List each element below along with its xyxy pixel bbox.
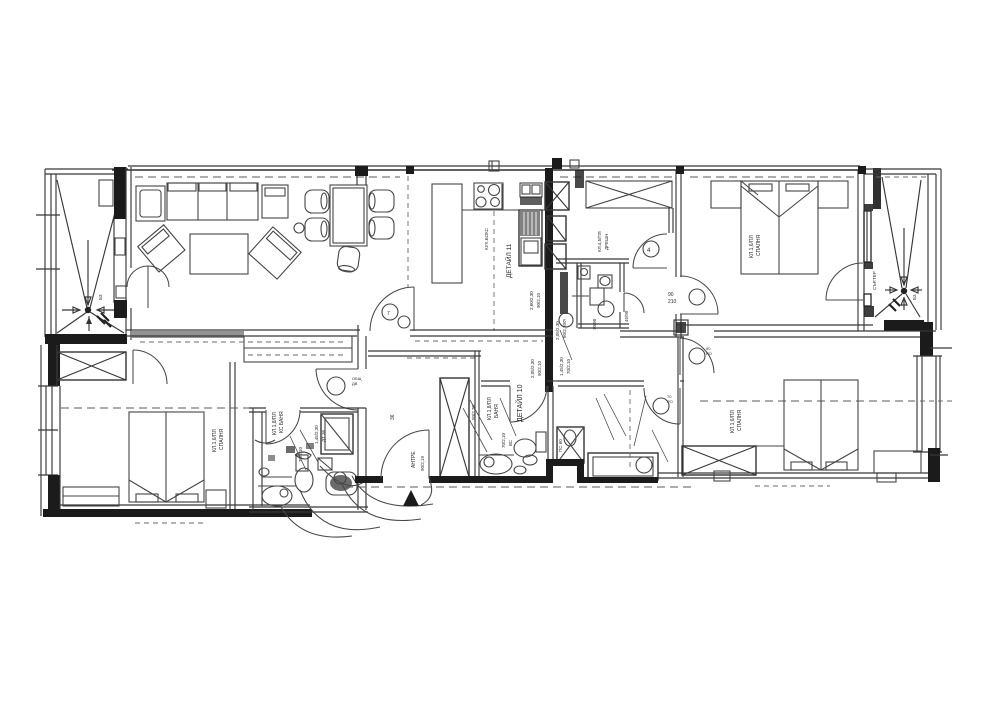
svg-text:2,05/2,30: 2,05/2,30 [530, 359, 535, 378]
svg-text:СПАЛНЯ: СПАЛНЯ [219, 428, 225, 450]
svg-text:2,05/2,30: 2,05/2,30 [555, 321, 560, 340]
svg-text:50/2,30: 50/2,30 [471, 404, 476, 420]
svg-text:1,45/2,30: 1,45/2,30 [559, 357, 564, 376]
svg-text:АНТРЕ: АНТРЕ [411, 451, 417, 468]
svg-text:БЗ: БЗ [912, 294, 917, 300]
svg-text:ДРЕШН: ДРЕШН [604, 234, 609, 250]
svg-text:1,45/2,30: 1,45/2,30 [314, 425, 319, 444]
svg-text:7: 7 [387, 311, 390, 317]
svg-text:90: 90 [668, 292, 674, 298]
svg-text:КУХ.БОКС: КУХ.БОКС [484, 227, 489, 250]
svg-text:КС БАНЯ: КС БАНЯ [279, 411, 285, 433]
svg-text:КЛ.1,6/ПЛ: КЛ.1,6/ПЛ [730, 410, 736, 433]
svg-text:СПАЛНЯ: СПАЛНЯ [756, 234, 762, 256]
svg-text:КЛ.1,8/ПЛ: КЛ.1,8/ПЛ [272, 412, 278, 435]
svg-text:ДТ 36: ДТ 36 [321, 429, 326, 442]
svg-text:ДВ: ДВ [352, 381, 358, 386]
svg-text:ПС 60: ПС 60 [558, 439, 563, 452]
svg-text:ДЕТАЙЛ 10: ДЕТАЙЛ 10 [515, 384, 524, 422]
svg-text:РО: РО [706, 351, 712, 356]
svg-text:90/2,19: 90/2,19 [420, 455, 425, 471]
svg-text:70/2,10: 70/2,10 [298, 446, 303, 462]
svg-text:36: 36 [390, 414, 396, 420]
svg-text:90/2,10: 90/2,10 [537, 360, 542, 376]
svg-text:БЗ: БЗ [98, 294, 103, 300]
svg-text:РО: РО [667, 399, 673, 404]
svg-text:45/90: 45/90 [624, 310, 629, 322]
svg-text:ДЕТАЙЛ 11: ДЕТАЙЛ 11 [504, 243, 513, 278]
svg-text:90/2,10: 90/2,10 [536, 292, 541, 308]
svg-text:2,60/2,30: 2,60/2,30 [529, 291, 534, 310]
svg-text:КЛ.1,8/ПЛ: КЛ.1,8/ПЛ [487, 397, 493, 420]
svg-text:БАНЯ: БАНЯ [494, 404, 500, 418]
svg-text:КЛ.1,6/ПЛ: КЛ.1,6/ПЛ [212, 429, 218, 452]
svg-text:210: 210 [668, 299, 677, 305]
svg-text:СЪР.ТЕР: СЪР.ТЕР [872, 271, 877, 290]
svg-text:70/90: 70/90 [592, 318, 597, 330]
svg-text:КЛ.1,6/ПЛ: КЛ.1,6/ПЛ [749, 235, 755, 258]
svg-text:ВС: ВС [508, 439, 513, 446]
svg-text:70/2,10: 70/2,10 [501, 432, 506, 448]
svg-text:70/2,10: 70/2,10 [566, 358, 571, 374]
svg-text:СПАЛНЯ: СПАЛНЯ [737, 409, 743, 431]
svg-text:КЛ.4,5/ПЛ: КЛ.4,5/ПЛ [597, 231, 602, 252]
svg-text:60/2,10: 60/2,10 [562, 322, 567, 338]
